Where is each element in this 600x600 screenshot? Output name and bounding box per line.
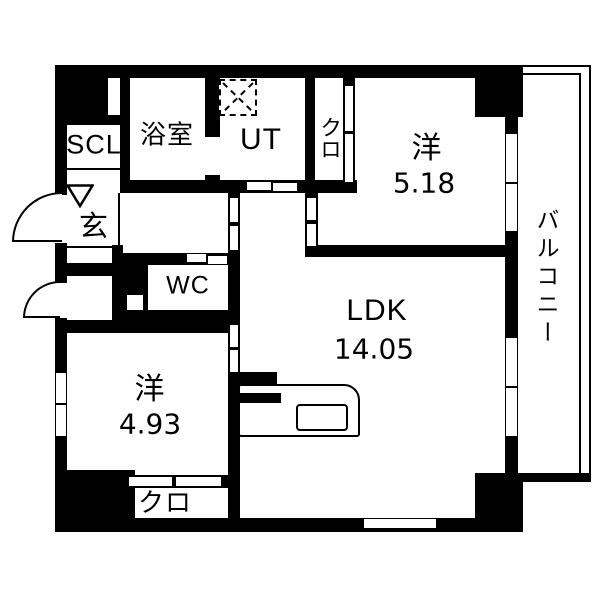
sliding-door (229, 225, 239, 251)
room-label-balcony: バルコニー (529, 208, 563, 348)
door-swing-arc (12, 192, 62, 242)
room-label-shoe-closet: SCL (66, 130, 122, 161)
room-size-western1: 5.18 (393, 167, 455, 200)
pipe-space-box (127, 295, 143, 310)
sliding-door (344, 85, 354, 132)
room-label-closet-lower: クロ (138, 483, 192, 520)
room-label-toilet: WC (166, 272, 210, 301)
balcony-rail (579, 73, 581, 473)
kitchen-wall-stub (238, 393, 281, 403)
door-swing-arc (23, 281, 60, 318)
genkan-step-line (67, 246, 118, 248)
window-divider (505, 182, 518, 184)
window-divider (55, 403, 67, 405)
wall (55, 320, 240, 333)
room-label-ldk: LDK (346, 294, 407, 328)
balcony-bottom-wall (523, 473, 591, 482)
wall (305, 245, 518, 257)
sliding-door (229, 324, 239, 348)
kitchen-wall-stub (228, 372, 277, 385)
room-size-western2: 4.93 (119, 408, 181, 441)
balcony-rail (589, 65, 591, 482)
room-label-western2: 洋 (135, 364, 166, 408)
sliding-door (246, 181, 272, 191)
sliding-door (229, 349, 239, 373)
scl-divider-line (67, 168, 120, 170)
wall (123, 180, 357, 193)
room-size-ldk: 14.05 (334, 333, 414, 366)
floor-plan: 浴室 UT クロ 洋 5.18 バルコニー SCL 玄 WC LDK 14.05… (0, 0, 600, 600)
room-label-utility: UT (240, 123, 282, 157)
sliding-door (344, 133, 354, 183)
sliding-door (272, 182, 298, 192)
room-label-bath: 浴室 (140, 115, 194, 152)
sliding-door (186, 253, 207, 263)
wall-notch (108, 78, 120, 115)
balcony-rail (523, 65, 591, 67)
sliding-door (207, 255, 228, 265)
sliding-door (229, 197, 239, 223)
wall (112, 245, 123, 325)
window (363, 518, 437, 529)
balcony-rail (523, 73, 581, 75)
bath-door-opening (205, 137, 220, 175)
kitchen-sink (296, 404, 348, 431)
sliding-door (306, 197, 317, 221)
room-label-entrance: 玄 (79, 203, 109, 245)
wall (475, 65, 523, 117)
room-label-western1: 洋 (412, 123, 443, 167)
sliding-door (306, 223, 317, 247)
room-label-closet-upper: クロ (313, 116, 345, 160)
wall (55, 263, 112, 276)
window-divider (505, 386, 518, 388)
wall (205, 78, 220, 193)
washer-pan-icon (219, 79, 257, 116)
wall (475, 473, 523, 532)
genkan-step-line (118, 193, 120, 248)
